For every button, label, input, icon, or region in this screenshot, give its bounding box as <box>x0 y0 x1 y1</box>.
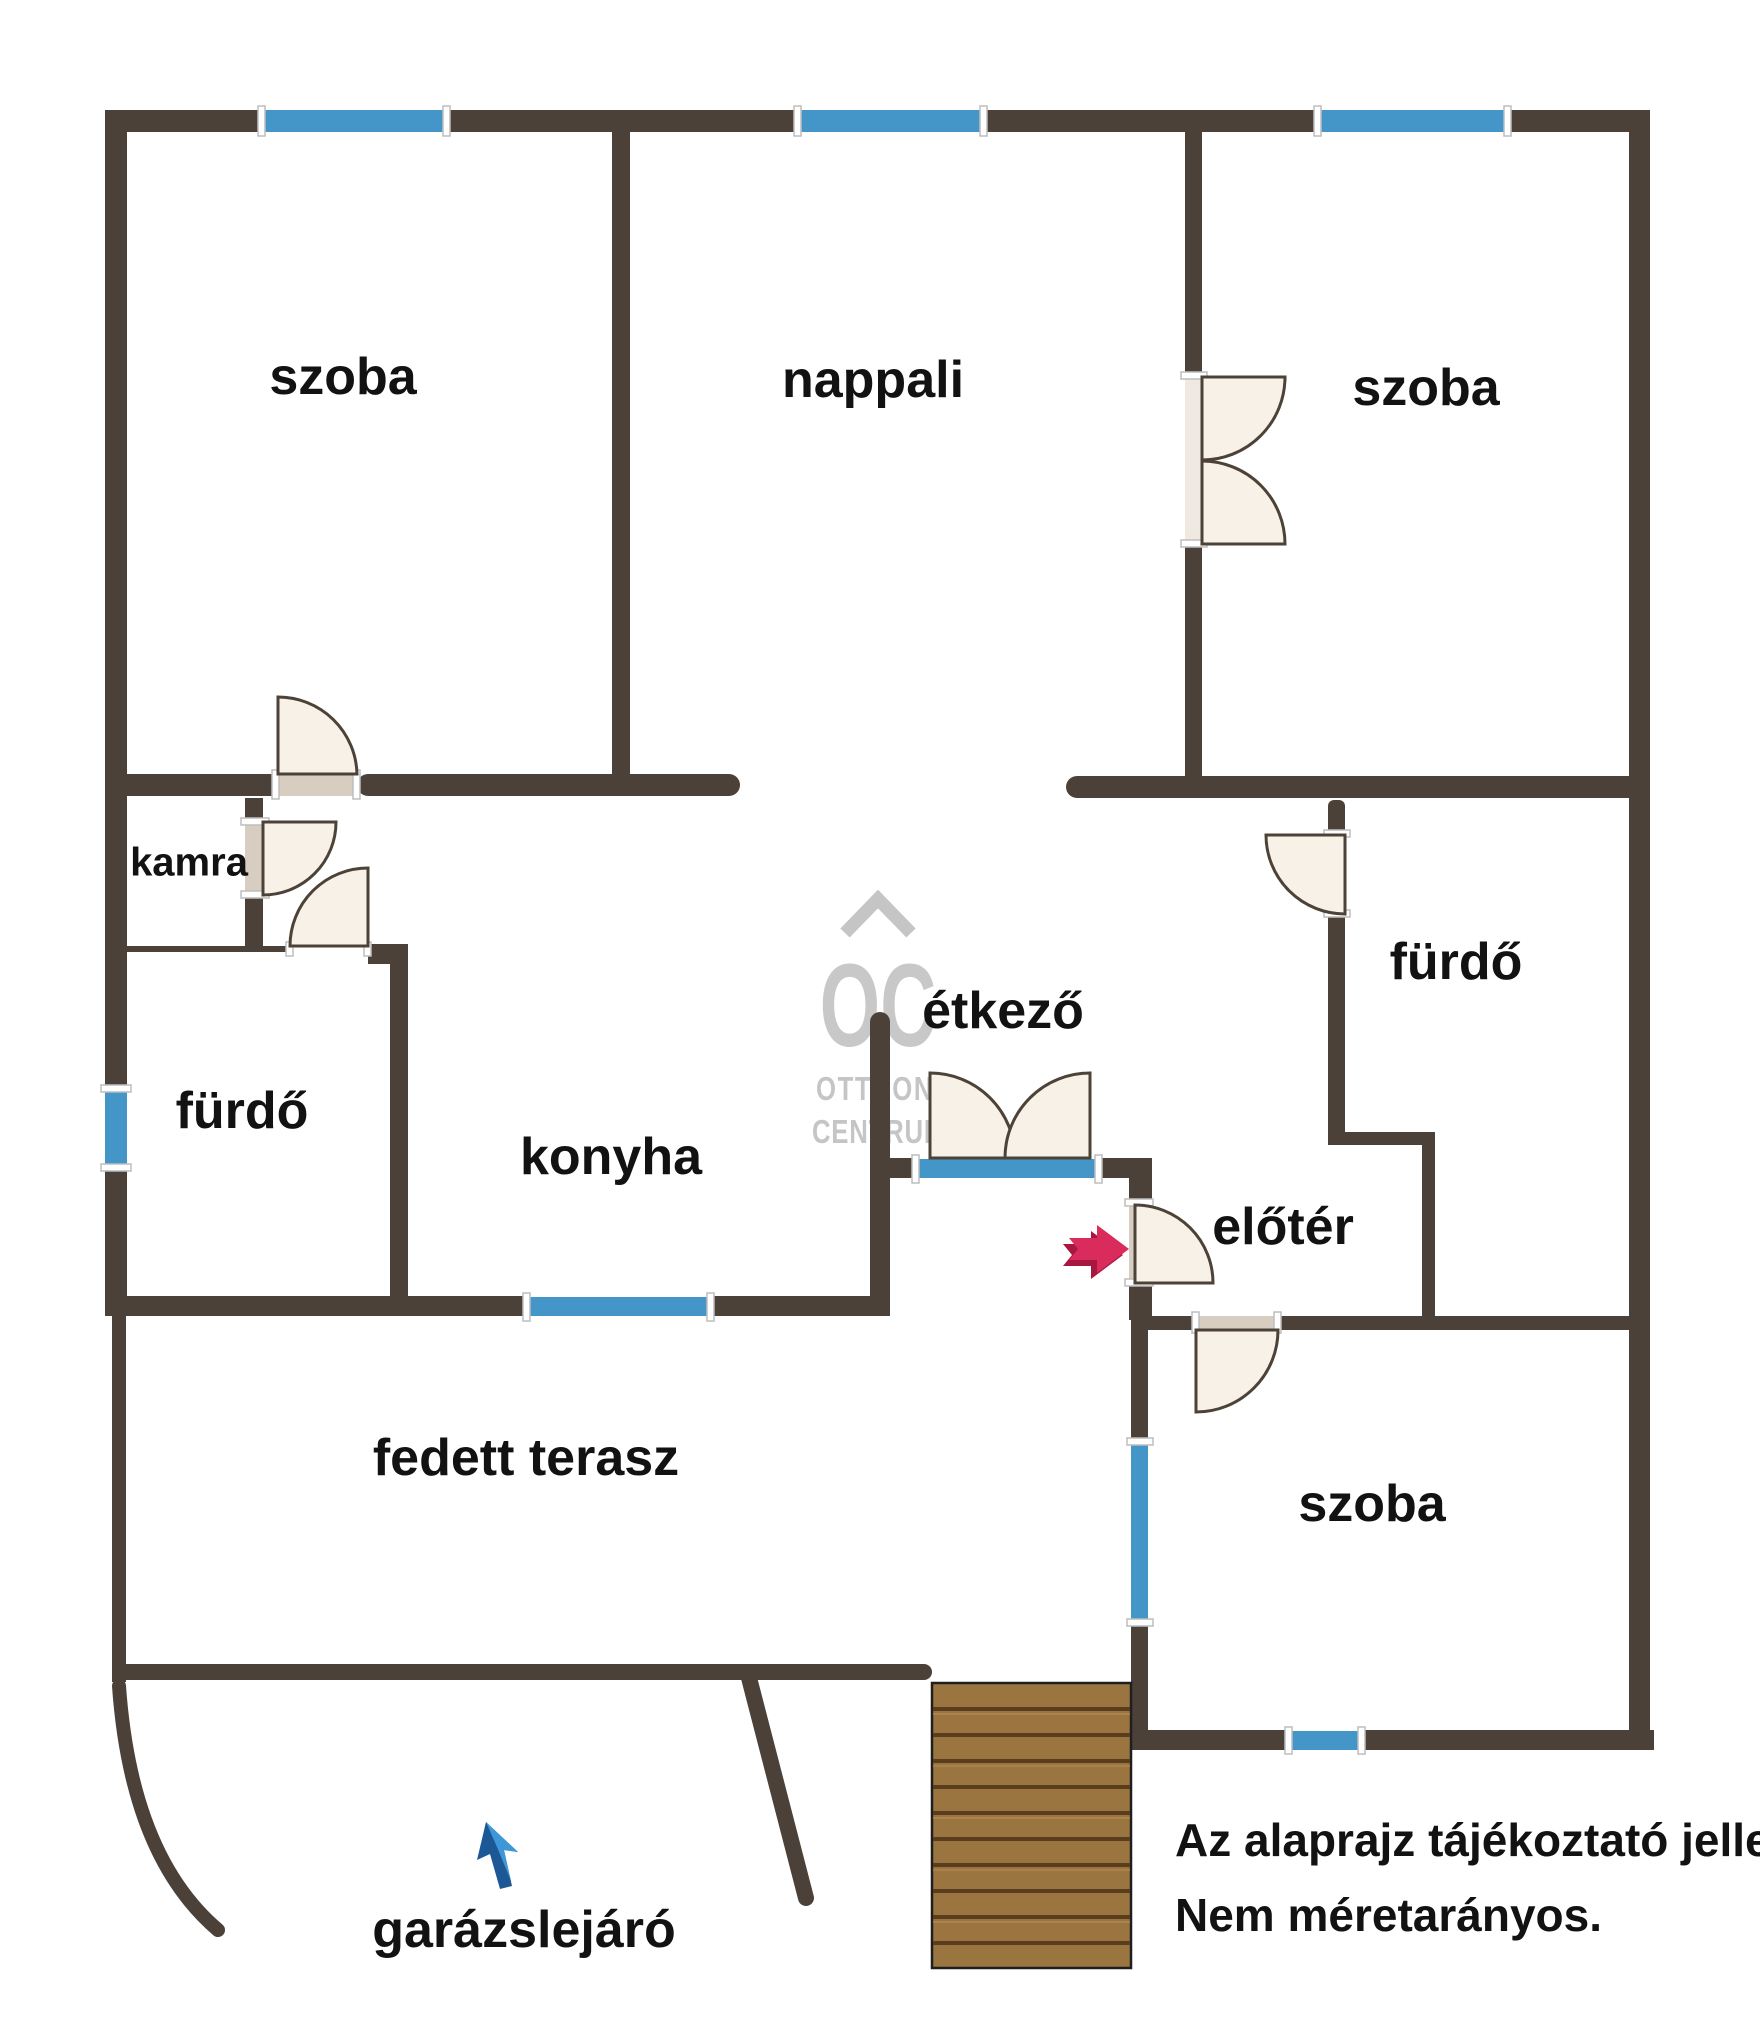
stairs <box>932 1683 1131 1968</box>
door-szoba1 <box>278 697 357 774</box>
garage-ramp-wall <box>748 1674 806 1898</box>
door-etkezo-right-leaf <box>1005 1073 1090 1158</box>
north-arrow-icon <box>477 1822 518 1889</box>
door-furdo2 <box>1266 835 1345 914</box>
room-label-fedett-terasz: fedett terasz <box>373 1428 679 1488</box>
door-nappali-szoba-top-leaf <box>1202 377 1285 460</box>
room-label-szoba-2: szoba <box>1352 358 1499 418</box>
entrance-arrow-icon <box>1063 1225 1129 1279</box>
door-thresholds <box>245 377 1345 1330</box>
door-szoba3 <box>1196 1330 1278 1412</box>
room-label-nappali: nappali <box>782 350 964 410</box>
room-label-furdo-1: fürdő <box>176 1081 309 1141</box>
room-label-szoba-1: szoba <box>269 347 416 407</box>
disclaimer-line-1: Az alaprajz tájékoztató jellegű. <box>1175 1813 1760 1867</box>
door-nappali-szoba-bottom-leaf <box>1202 461 1285 544</box>
room-label-konyha: konyha <box>520 1127 702 1187</box>
floorplan-drawing: OC OTTHON CENTRUM <box>0 0 1760 2040</box>
room-label-garazslejaro: garázslejáró <box>372 1900 676 1960</box>
disclaimer-line-2: Nem méretarányos. <box>1175 1888 1602 1942</box>
garage-curved-wall <box>119 1686 218 1930</box>
door-etkezo-left-leaf <box>930 1073 1015 1158</box>
door-entrance <box>1135 1205 1213 1283</box>
room-label-etkezo: étkező <box>922 981 1084 1041</box>
room-label-furdo-2: fürdő <box>1390 932 1523 992</box>
doors <box>263 377 1345 1412</box>
room-label-szoba-3: szoba <box>1298 1474 1445 1534</box>
room-label-kamra: kamra <box>130 841 248 886</box>
floorplan-canvas: OC OTTHON CENTRUM <box>0 0 1760 2040</box>
room-label-eloter: előtér <box>1212 1197 1354 1257</box>
